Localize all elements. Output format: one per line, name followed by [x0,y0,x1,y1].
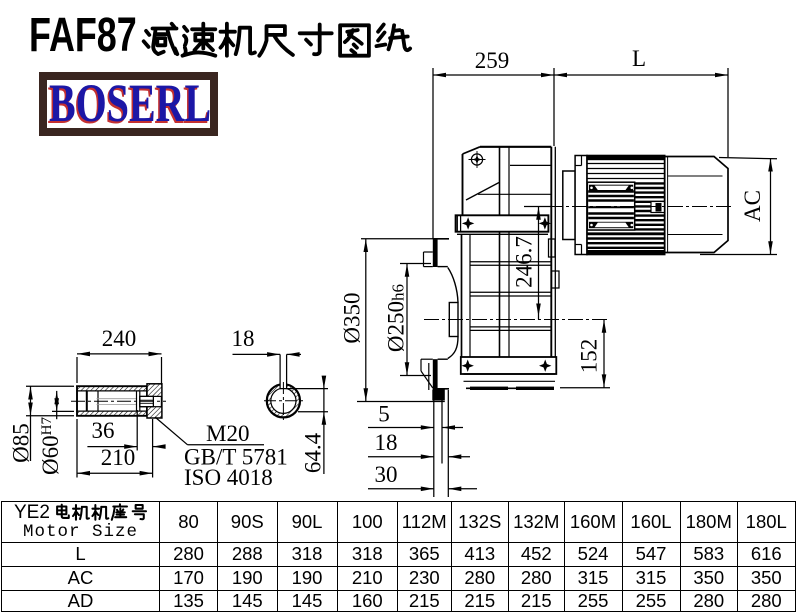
svg-text:M20: M20 [206,421,249,446]
svg-text:AC: AC [740,190,765,222]
svg-text:18: 18 [375,430,398,455]
svg-text:Ø250h6: Ø250h6 [384,284,409,352]
svg-text:259: 259 [475,48,510,73]
svg-text:Ø60H7: Ø60H7 [38,417,63,475]
svg-text:36: 36 [92,418,115,443]
svg-text:L: L [632,46,646,71]
svg-text:210: 210 [101,445,136,470]
svg-text:246.7: 246.7 [512,236,537,288]
svg-text:64.4: 64.4 [301,432,326,473]
svg-text:18: 18 [232,326,255,351]
svg-text:30: 30 [375,462,398,487]
svg-text:5: 5 [378,402,390,427]
svg-text:Ø350: Ø350 [340,292,365,343]
svg-text:240: 240 [102,326,137,351]
svg-text:ISO 4018: ISO 4018 [184,465,273,490]
svg-text:Ø85: Ø85 [9,423,34,463]
svg-text:152: 152 [577,339,602,374]
